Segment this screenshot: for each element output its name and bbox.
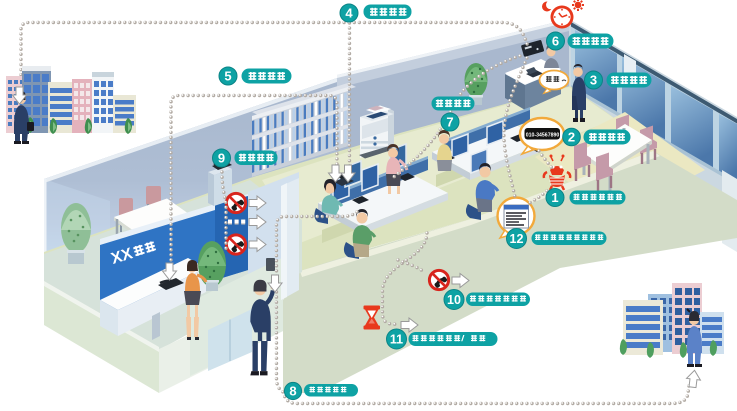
svg-text:1: 1 xyxy=(551,190,558,205)
svg-text:4: 4 xyxy=(345,6,353,21)
svg-text:2: 2 xyxy=(568,130,575,145)
svg-text:8: 8 xyxy=(289,383,296,398)
svg-text:3: 3 xyxy=(590,73,597,88)
svg-text:7: 7 xyxy=(446,115,453,130)
svg-text:5: 5 xyxy=(224,69,231,84)
svg-text:9: 9 xyxy=(218,151,225,166)
svg-text:11: 11 xyxy=(390,332,403,346)
svg-text:12: 12 xyxy=(510,232,524,246)
svg-text:6: 6 xyxy=(552,34,559,49)
svg-text:10: 10 xyxy=(447,293,461,307)
svg-text:010-34567890: 010-34567890 xyxy=(526,133,560,139)
